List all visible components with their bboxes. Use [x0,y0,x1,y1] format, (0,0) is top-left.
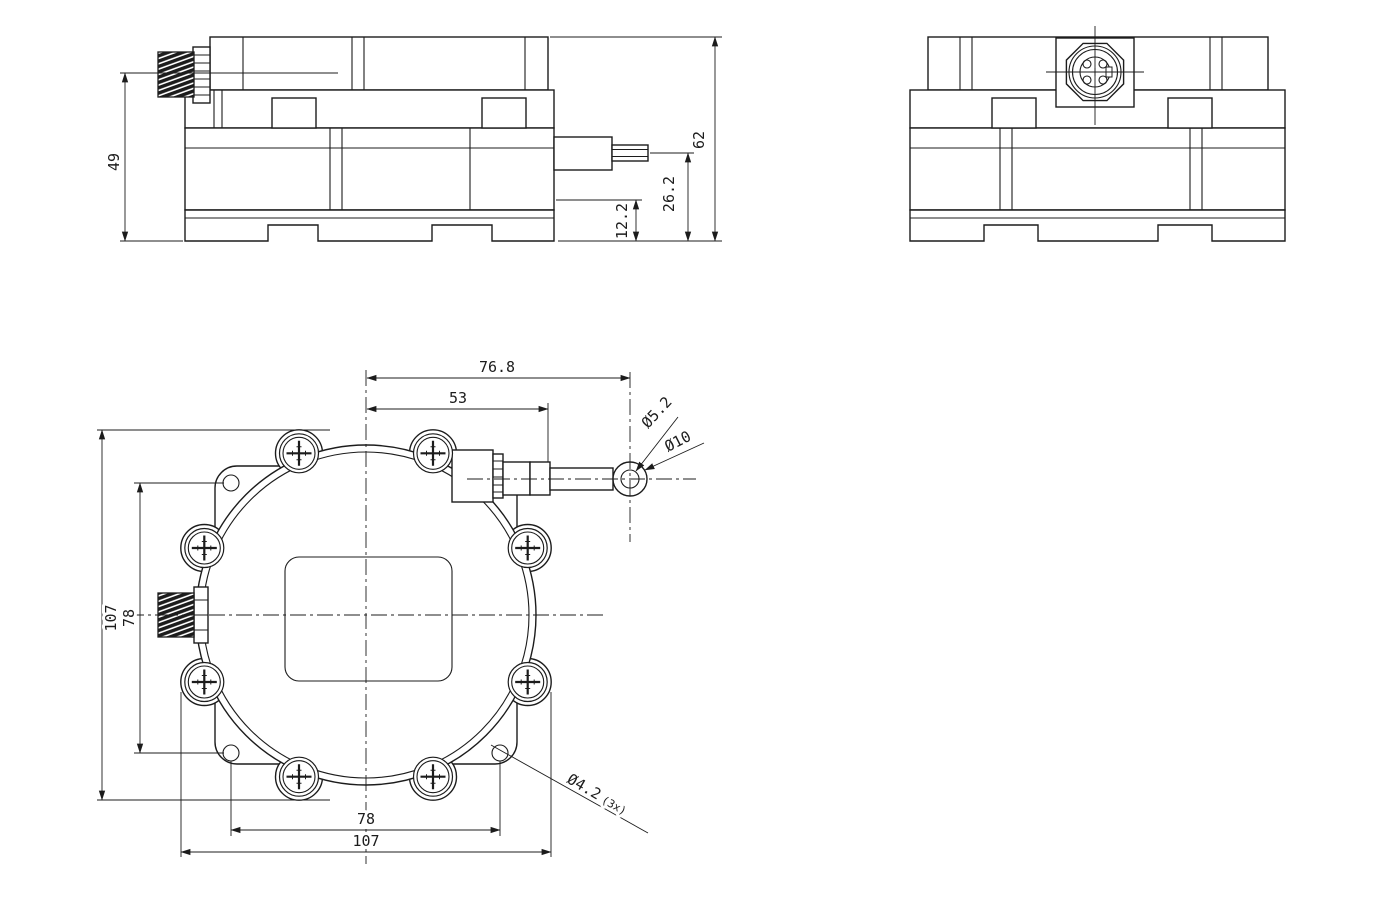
phillips-screw [185,663,224,702]
rear-main-body [910,128,1285,210]
front-cable-outlet [452,450,613,502]
dim-label-53: 53 [449,389,467,407]
dim-label-78-h: 78 [357,810,375,828]
dim-label-62: 62 [690,131,708,149]
rear-boss-right [1168,98,1212,128]
dim-label-eyelet-bore: Ø5.2 [638,393,676,432]
dim-49: 49 [105,73,183,241]
rear-base-flange [910,210,1285,241]
phillips-screw [414,434,453,473]
phillips-screw [508,663,547,702]
dim-label-107-h: 107 [352,832,379,850]
outlet-nut-1 [503,462,530,495]
phillips-screw [414,757,453,796]
dim-label-49: 49 [105,153,123,171]
dim-12-2: 12.2 [556,200,642,241]
side-main-body [185,128,554,210]
phillips-screw [185,529,224,568]
dim-label-mount-holes: Ø4.2(3x) [564,770,631,819]
rear-boss-left [992,98,1036,128]
dim-label-12-2: 12.2 [613,203,631,239]
side-base-flange [185,210,554,241]
dim-label-107-v: 107 [102,604,120,631]
rear-view [910,26,1285,241]
dim-76-8: 76.8 [367,358,630,378]
drawing-svg: 49 62 26.2 12.2 [0,0,1400,910]
phillips-screw [280,757,319,796]
side-boss-left [272,98,316,128]
outlet-nut-2 [530,462,550,495]
side-boss-right [482,98,526,128]
dim-eyelet-bore: Ø5.2 [636,393,678,471]
dim-26-2: 26.2 [650,153,694,241]
front-view: 76.8 53 107 78 78 107 Ø5.2 [97,358,704,864]
dim-label-26-2: 26.2 [660,176,678,212]
dim-label-78-v: 78 [120,609,138,627]
dim-mount-holes: Ø4.2(3x) [491,745,648,833]
technical-drawing-page: 49 62 26.2 12.2 [0,0,1400,910]
outlet-rod [612,145,648,161]
dim-label-76-8: 76.8 [479,358,515,376]
phillips-screw [280,434,319,473]
outlet-cylinder [554,137,612,170]
outlet-block [452,450,493,502]
side-cable-outlet [554,137,648,170]
connector-thread [158,52,194,97]
side-view: 49 62 26.2 12.2 [105,37,722,241]
phillips-screw [508,529,547,568]
dim-mount-hole-value: Ø4.2 [564,770,604,804]
side-top-plate [210,37,548,90]
